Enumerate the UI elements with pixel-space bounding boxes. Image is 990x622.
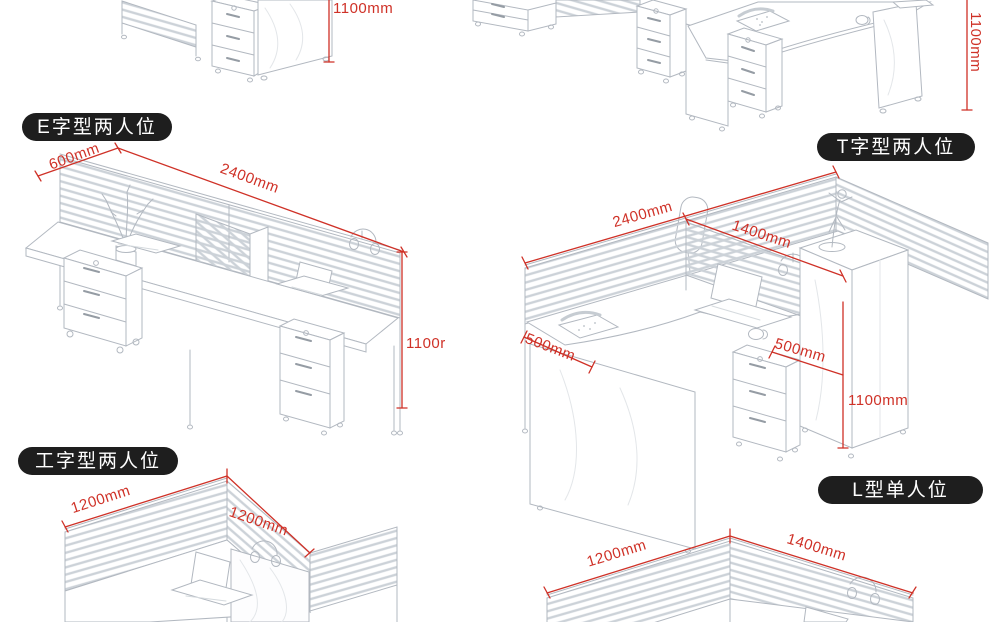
dim-e-height: 1100r [406,336,446,351]
straight-desk-illustration [122,0,333,82]
e-type-desk-illustration [26,154,403,435]
badge-l-type: L型单人位 [818,476,983,504]
t-type-desk-illustration [473,0,933,131]
badge-t-type: T字型两人位 [817,133,975,161]
dim-l-height: 1100mm [848,393,908,408]
badge-i-type: 工字型两人位 [18,447,178,475]
dim-top-left-height: 1100mm [333,1,393,16]
desk-dimension-spec-image: E字型两人位 T字型两人位 工字型两人位 L型单人位 1100mm 1100mm… [0,0,990,622]
dim-top-right-height: 1100mm [968,12,983,72]
desk-line-art [0,0,990,622]
badge-e-type: E字型两人位 [22,113,172,141]
